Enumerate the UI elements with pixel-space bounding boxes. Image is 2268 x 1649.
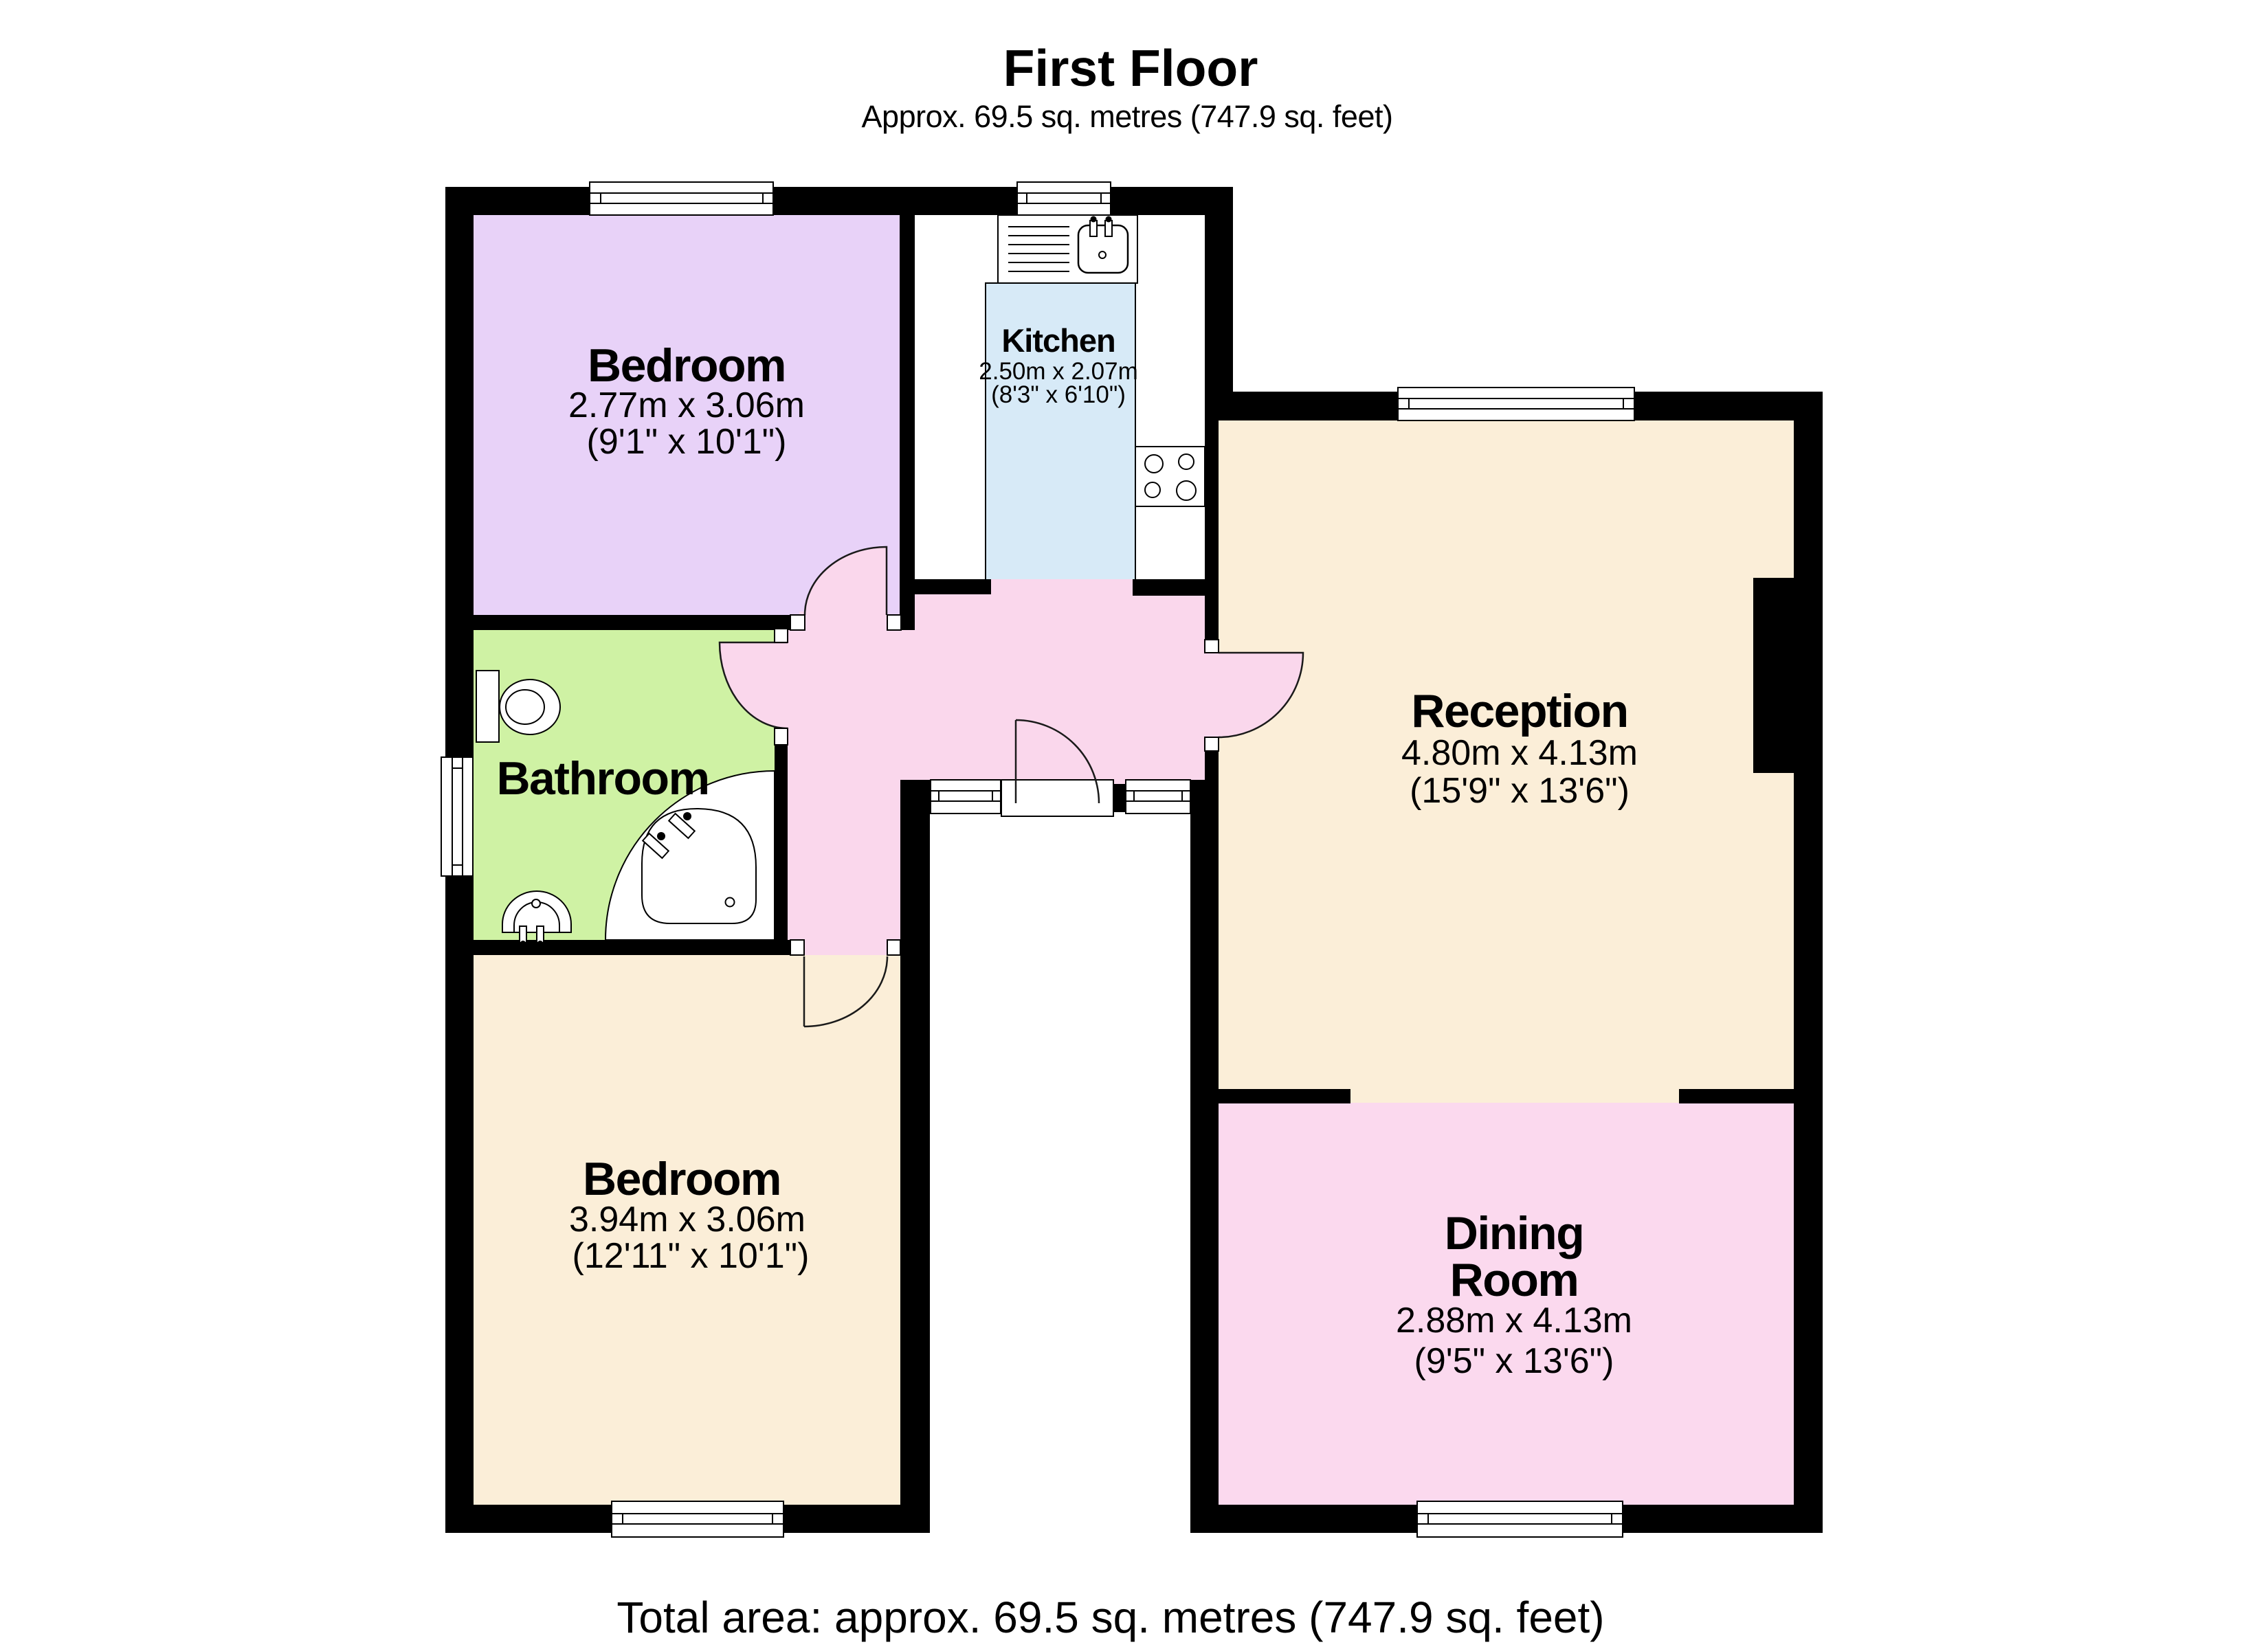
svg-text:Bedroom: Bedroom (588, 339, 786, 392)
svg-text:4.80m x 4.13m: 4.80m x 4.13m (1401, 733, 1638, 773)
svg-text:(9'1" x 10'1"): (9'1" x 10'1") (587, 422, 787, 462)
svg-text:Dining: Dining (1445, 1207, 1584, 1259)
svg-text:Reception: Reception (1411, 685, 1627, 737)
svg-text:(12'11" x 10'1"): (12'11" x 10'1") (572, 1236, 810, 1276)
svg-text:First Floor: First Floor (1003, 39, 1258, 97)
svg-text:3.94m x 3.06m: 3.94m x 3.06m (569, 1200, 805, 1239)
svg-text:Bedroom: Bedroom (583, 1153, 781, 1205)
svg-text:Bathroom: Bathroom (496, 752, 709, 805)
svg-text:Kitchen: Kitchen (1001, 322, 1115, 359)
svg-text:2.77m x 3.06m: 2.77m x 3.06m (568, 385, 805, 425)
svg-text:Total area: approx. 69.5 sq. m: Total area: approx. 69.5 sq. metres (747… (616, 1593, 1604, 1642)
svg-text:2.88m x 4.13m: 2.88m x 4.13m (1396, 1301, 1632, 1340)
svg-text:(8'3" x 6'10"): (8'3" x 6'10") (991, 381, 1126, 408)
svg-text:(9'5" x 13'6"): (9'5" x 13'6") (1414, 1341, 1614, 1381)
svg-text:(15'9" x 13'6"): (15'9" x 13'6") (1410, 771, 1630, 811)
svg-text:Approx. 69.5 sq. metres (747.9: Approx. 69.5 sq. metres (747.9 sq. feet) (862, 99, 1393, 134)
svg-text:Room: Room (1450, 1254, 1579, 1306)
